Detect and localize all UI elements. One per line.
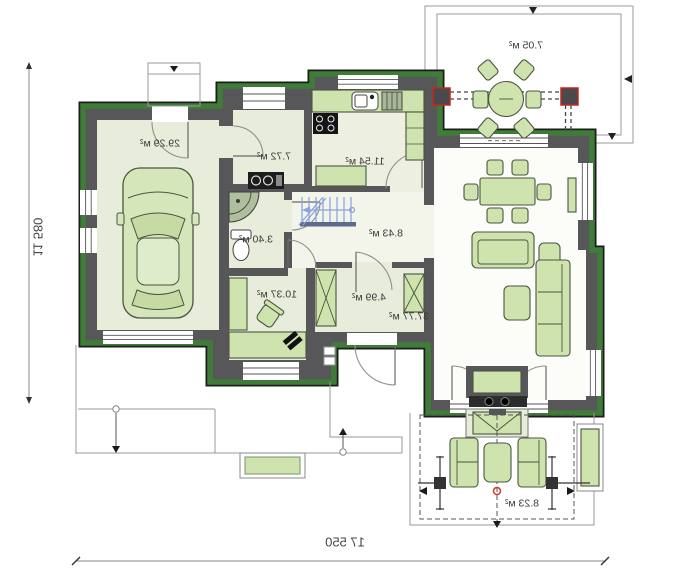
survey-point-icon bbox=[340, 449, 346, 455]
closet-icon bbox=[404, 274, 424, 312]
canopy bbox=[148, 63, 200, 106]
stove-icon bbox=[313, 113, 338, 134]
area-label-living: 37.77 м² bbox=[389, 311, 429, 323]
dishrack-icon bbox=[382, 92, 402, 110]
terrace-armchair-icon bbox=[518, 438, 546, 487]
terrace-armchair-icon bbox=[450, 438, 478, 487]
area-label-terrace-top: 7.05 м² bbox=[508, 40, 543, 52]
car-icon bbox=[117, 168, 199, 318]
window-kitchen-top bbox=[338, 75, 398, 89]
arrow-icon bbox=[624, 75, 632, 83]
window-garage-left-2 bbox=[80, 228, 97, 253]
porch-step bbox=[324, 357, 335, 365]
window-office-bay bbox=[243, 362, 299, 380]
bench-icon bbox=[577, 424, 603, 491]
armchair-icon bbox=[504, 286, 530, 320]
sink-icon bbox=[352, 92, 378, 110]
dimension-depth: 11 580 bbox=[30, 218, 45, 257]
porch-step bbox=[324, 347, 335, 355]
window-utility-top bbox=[243, 87, 285, 109]
arrow-icon bbox=[26, 62, 32, 69]
window-garage-left-1 bbox=[80, 190, 97, 215]
corner-sofa-icon bbox=[536, 260, 570, 356]
kitchen-cabinet-column bbox=[406, 112, 424, 160]
arrow-icon bbox=[339, 428, 347, 435]
arrow-icon bbox=[529, 7, 537, 14]
doormat-icon bbox=[240, 453, 305, 478]
area-label-bathroom: 3.40 м² bbox=[238, 234, 273, 246]
dimension-width: 17 550 bbox=[325, 535, 365, 550]
area-label-office: 10.37 м² bbox=[257, 289, 297, 301]
floor-plan: 29.29 м² 7.72 м² 11.54 м² 8.43 м² 3.40 м… bbox=[0, 0, 700, 575]
radiator-icon bbox=[568, 178, 576, 212]
area-label-utility: 7.72 м² bbox=[256, 151, 291, 163]
floor-plan-drawing: 29.29 м² 7.72 м² 11.54 м² 8.43 м² 3.40 м… bbox=[0, 0, 700, 575]
hall-living-opening bbox=[424, 205, 434, 258]
area-label-vestibule: 4.99 м² bbox=[351, 292, 386, 304]
kitchen-island bbox=[316, 166, 366, 186]
area-label-terrace-bottom: 8.23 м² bbox=[504, 498, 539, 510]
terrace-table-icon bbox=[484, 443, 511, 482]
window-living-right-lower bbox=[585, 350, 601, 396]
arrow-icon bbox=[112, 446, 120, 453]
arrow-icon bbox=[26, 397, 32, 404]
arrow-icon bbox=[170, 66, 178, 72]
survey-point-icon bbox=[113, 406, 119, 412]
sofa-icon bbox=[472, 232, 534, 268]
terrace-top-group bbox=[433, 59, 578, 140]
arrow-icon bbox=[608, 133, 616, 140]
pergola-post-icon bbox=[561, 88, 578, 105]
window-living-right-upper bbox=[577, 163, 593, 220]
office-shelf bbox=[229, 278, 247, 330]
round-table-icon bbox=[473, 59, 541, 140]
closet-icon bbox=[316, 270, 336, 326]
area-label-kitchen: 11.54 м² bbox=[345, 156, 385, 168]
area-label-hall: 8.43 м² bbox=[368, 228, 403, 240]
room-hall bbox=[292, 192, 424, 268]
door-entrance bbox=[347, 333, 397, 385]
torch-icon bbox=[418, 456, 446, 510]
area-label-garage: 29.29 м² bbox=[140, 138, 180, 150]
appliance-icon bbox=[248, 172, 284, 189]
garage-gate bbox=[103, 331, 193, 344]
pergola-post-icon bbox=[433, 88, 450, 105]
terrace-slider-door bbox=[460, 134, 548, 147]
